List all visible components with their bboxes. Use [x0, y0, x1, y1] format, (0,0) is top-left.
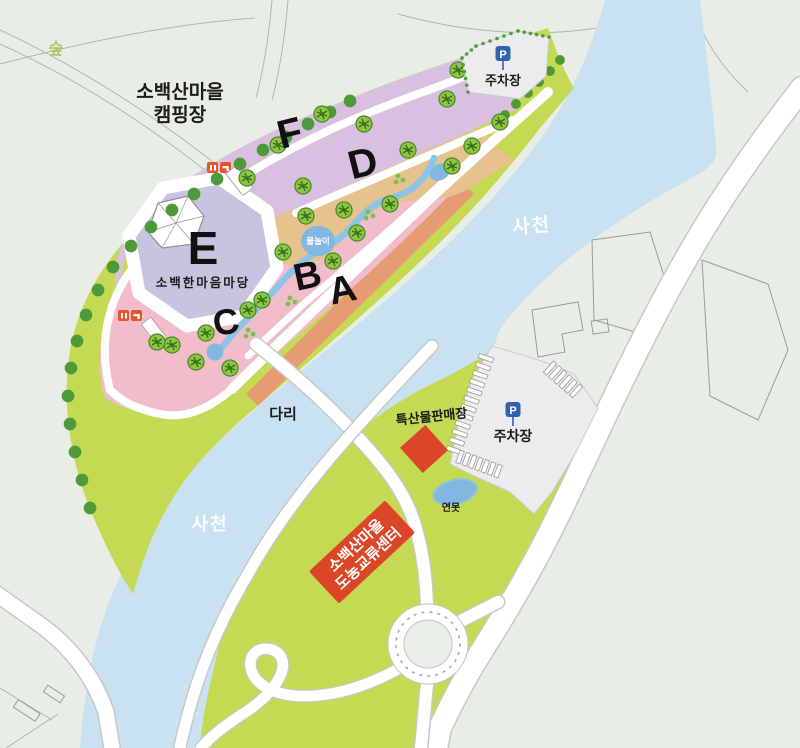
tree-icon [555, 55, 565, 65]
tree-icon [356, 116, 372, 132]
forest-label: 숲 [49, 40, 64, 58]
tree-icon [344, 95, 357, 108]
border-dot [529, 32, 533, 36]
svg-text:P: P [509, 405, 516, 417]
tree-icon [62, 390, 75, 403]
tree-icon [145, 221, 158, 234]
zone-e-label: E [188, 222, 219, 274]
campground-title: 캠핑장 [154, 104, 207, 126]
border-dot [461, 63, 465, 67]
river-label: 사천 [191, 514, 228, 534]
tree-icon [222, 360, 238, 376]
tree-icon [149, 334, 165, 350]
tree-icon [240, 302, 256, 318]
tree-icon [84, 502, 97, 515]
tree-icon [444, 158, 460, 174]
tree-icon [69, 446, 82, 459]
tree-icon [325, 253, 341, 269]
tree-icon [71, 335, 84, 348]
tree-icon [125, 240, 138, 253]
tree-icon [336, 202, 352, 218]
tree-icon [257, 144, 270, 157]
border-dot [495, 37, 499, 41]
svg-text:P: P [499, 49, 506, 61]
tree-icon [492, 114, 508, 130]
tree-icon [76, 474, 89, 487]
border-dot [464, 77, 468, 81]
border-dot [547, 35, 551, 39]
tree-icon [166, 204, 179, 217]
site-map: P 주차장 [0, 0, 800, 748]
border-dot [460, 56, 464, 60]
tree-icon [92, 284, 105, 297]
tree-icon [80, 309, 93, 322]
tree-icon [64, 418, 77, 431]
river-label: 사천 [511, 214, 551, 239]
water-play-label: 물놀이 [306, 236, 329, 246]
tree-icon [298, 208, 314, 224]
tree-icon [188, 354, 204, 370]
tree-icon [349, 225, 365, 241]
border-dot [535, 33, 539, 37]
campground-title: 소백산마을 [136, 81, 223, 103]
tree-icon [275, 244, 291, 260]
border-dot [522, 30, 526, 34]
tree-icon [211, 173, 224, 186]
border-dot [481, 42, 485, 46]
tree-icon [164, 337, 180, 353]
tree-icon [382, 196, 398, 212]
map-canvas: P 주차장 [0, 0, 800, 748]
tree-icon [314, 106, 330, 122]
tree-icon [65, 362, 78, 375]
border-dot [463, 70, 467, 74]
tree-icon [295, 178, 311, 194]
top-parking-label: 주차장 [485, 73, 521, 88]
tree-icon [239, 170, 255, 186]
border-dot [470, 48, 474, 52]
border-dot [466, 90, 470, 94]
tree-icon [302, 118, 315, 131]
border-dot [509, 32, 513, 36]
plaza-label: 소백한마음마당 [156, 275, 251, 290]
tree-icon [198, 325, 214, 341]
tree-icon [188, 188, 201, 201]
border-dot [502, 34, 506, 38]
border-dot [474, 44, 478, 48]
border-dot [516, 29, 520, 33]
tree-icon [439, 91, 455, 107]
border-dot [541, 34, 545, 38]
roundabout [388, 604, 468, 684]
bridge-label: 다리 [269, 406, 297, 423]
tree-icon [107, 261, 120, 274]
tree-icon [464, 138, 480, 154]
pond-label: 연못 [442, 501, 460, 514]
tree-icon [234, 158, 247, 171]
border-dot [465, 52, 469, 56]
tree-icon [254, 292, 270, 308]
lower-parking-label: 주차장 [494, 428, 533, 444]
border-dot [488, 39, 492, 43]
tree-icon [400, 142, 416, 158]
tree-icon [511, 99, 521, 109]
border-dot [465, 83, 469, 87]
